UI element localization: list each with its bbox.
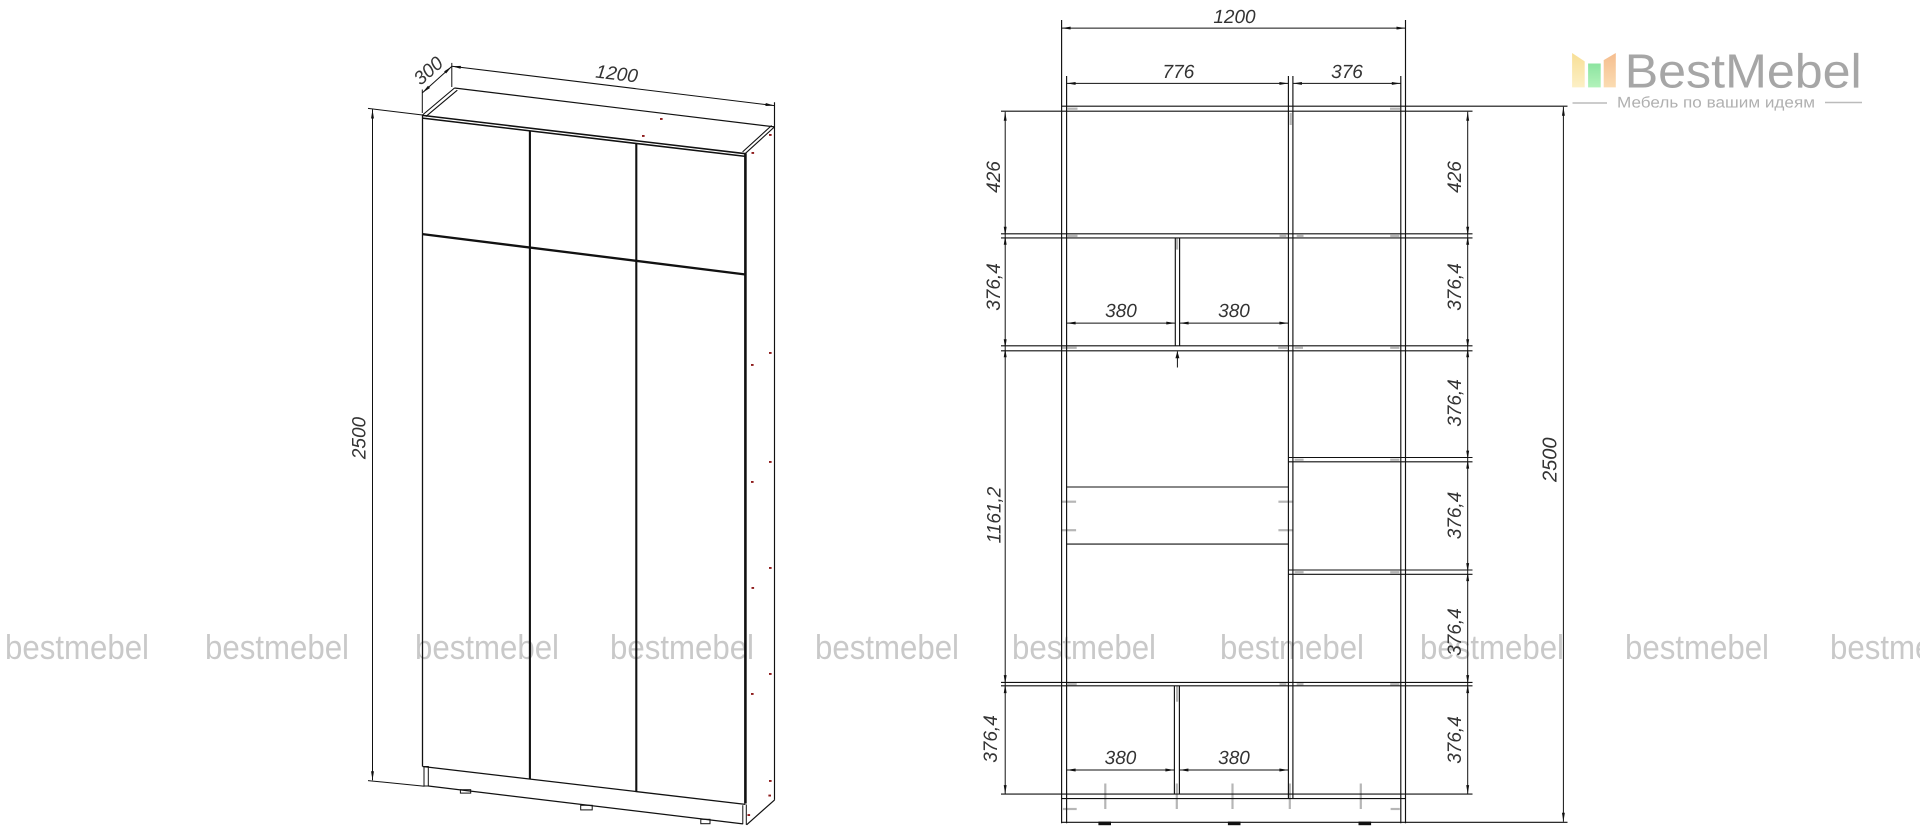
svg-text:426: 426 xyxy=(1445,161,1466,193)
svg-text:bestmebel: bestmebel xyxy=(5,629,149,667)
svg-text:bestmebel: bestmebel xyxy=(1625,629,1769,667)
svg-text:300: 300 xyxy=(410,53,448,90)
svg-text:376,4: 376,4 xyxy=(1445,379,1466,427)
svg-text:bestmebel: bestmebel xyxy=(1012,629,1156,667)
svg-text:380: 380 xyxy=(1105,301,1137,322)
svg-text:bestmebel: bestmebel xyxy=(815,629,959,667)
svg-text:376,4: 376,4 xyxy=(1445,716,1466,764)
svg-text:bestmebel: bestmebel xyxy=(1830,629,1920,667)
svg-text:2500: 2500 xyxy=(1540,437,1562,483)
svg-text:bestmebel: bestmebel xyxy=(610,629,754,667)
svg-text:376,4: 376,4 xyxy=(1445,608,1466,656)
svg-text:Мебель по вашим идеям: Мебель по вашим идеям xyxy=(1617,94,1815,111)
svg-text:1200: 1200 xyxy=(1213,7,1256,28)
svg-text:1200: 1200 xyxy=(594,62,639,88)
svg-text:376,4: 376,4 xyxy=(1445,263,1466,311)
svg-text:426: 426 xyxy=(984,161,1005,193)
svg-text:1161,2: 1161,2 xyxy=(985,486,1006,543)
svg-text:380: 380 xyxy=(1105,748,1137,769)
svg-text:776: 776 xyxy=(1163,62,1195,83)
svg-text:2500: 2500 xyxy=(350,416,371,460)
svg-text:376,4: 376,4 xyxy=(984,263,1005,311)
svg-text:380: 380 xyxy=(1218,301,1250,322)
svg-text:bestmebel: bestmebel xyxy=(1220,629,1364,667)
svg-text:376,4: 376,4 xyxy=(1445,492,1466,540)
svg-text:376: 376 xyxy=(1331,62,1363,83)
svg-text:376,4: 376,4 xyxy=(981,715,1002,763)
svg-text:bestmebel: bestmebel xyxy=(1420,629,1564,667)
svg-text:bestmebel: bestmebel xyxy=(205,629,349,667)
svg-text:bestmebel: bestmebel xyxy=(415,629,559,667)
svg-text:380: 380 xyxy=(1218,748,1250,769)
svg-text:BestMebel: BestMebel xyxy=(1625,46,1862,99)
